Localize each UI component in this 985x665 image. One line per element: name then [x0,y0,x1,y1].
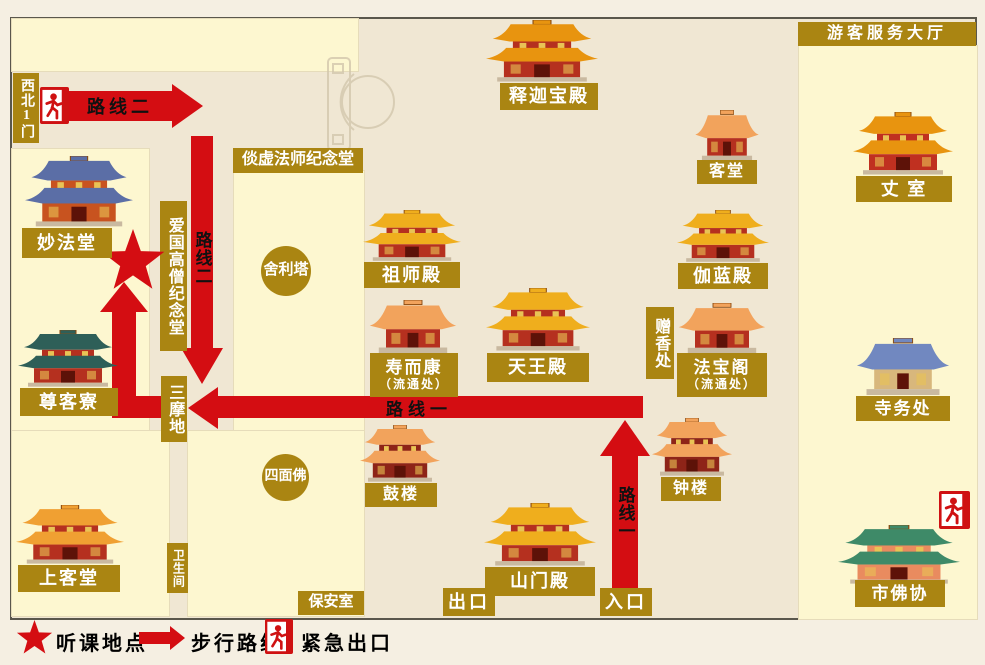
sarira-pagoda-label: 舍利塔 [261,246,311,296]
building-name: 妙法堂 [37,233,97,254]
emergency-exit-icon [265,619,293,654]
building-sublabel: （流通处） [379,378,449,392]
legend-emergency-exit: 紧急出口 [301,627,393,656]
building-name: 鼓楼 [383,486,419,504]
building-icon-tianwangdian [486,288,590,352]
building-label-zhonglou: 钟楼 [661,477,721,501]
building-name: 市佛协 [872,584,929,604]
building-icon-siwuchu [855,338,951,395]
building-name: 山门殿 [510,571,570,592]
building-label-fabaoge: 法宝阁（流通处） [677,353,767,397]
building-icon-zushidian [363,210,461,262]
building-icon-shouerkang [368,300,458,353]
building-name: 天王殿 [508,357,568,378]
building-icon-shangketang [16,505,124,565]
building-label-tianwangdian: 天王殿 [487,353,589,382]
building-name: 释迦宝殿 [509,86,589,107]
restroom-label: 卫生间 [167,543,188,593]
emergency-exit-icon [40,87,69,124]
building-name: 钟楼 [673,480,709,498]
route2-label-vertical: 路线二 [191,220,213,296]
building-label-shangketang: 上客堂 [18,565,120,592]
security-room-label: 保安室 [298,591,364,615]
building-label-zushidian: 祖师殿 [364,262,460,288]
building-name: 客堂 [709,163,745,181]
building-name: 上客堂 [39,568,99,589]
building-label-zhangshi: 丈 室 [856,176,952,202]
building-icon-shanmendian [484,503,596,567]
building-icon-zhonglou [652,418,732,477]
route1-label-horizontal: 路线一 [386,397,452,417]
pagoda-outline-ornament [306,56,402,152]
building-name: 寺务处 [875,399,932,419]
tanxu-memorial-label: 倓虚法师纪念堂 [233,148,363,173]
walk-arrow-icon [139,625,185,651]
building-name: 丈 室 [881,179,928,200]
building-icon-ketang [694,110,760,161]
building-label-shouerkang: 寿而康（流通处） [370,353,458,397]
building-label-shijiabaodian: 释迦宝殿 [500,83,598,110]
building-label-zunkeliao: 尊客寮 [20,388,118,416]
entrance-label: 入口 [600,588,652,616]
visitor-service-hall-banner: 游客服务大厅 [798,22,976,46]
building-icon-zhangshi [853,112,953,176]
building-label-siwuchu: 寺务处 [856,396,950,421]
four-faced-buddha-label: 四面佛 [262,454,309,501]
building-icon-gulou [360,425,440,483]
building-name: 寿而康 [386,358,443,378]
legend: 听课地点 步行路线 紧急出口 [0,616,985,665]
building-label-miaofatang: 妙法堂 [22,228,112,258]
building-name: 祖师殿 [382,265,442,286]
route2-label-horizontal: 路线二 [82,93,158,119]
building-icon-miaofatang [25,156,133,228]
building-icon-qielandian [677,210,769,263]
northwest-gate-label: 西北1门 [13,73,39,143]
building-icon-shifoxie [838,525,960,585]
building-label-ketang: 客堂 [697,160,757,184]
temple-guide-map: 路线二 路线二 路线一 路线一 游客服务大厅 西北1门 倓虚法师纪念堂 爱国高僧… [0,0,985,665]
route1-label-vertical: 路线一 [614,475,636,551]
building-label-shanmendian: 山门殿 [485,567,595,596]
building-icon-fabaoge [677,303,767,353]
incense-offering-label: 赠香处 [646,307,674,379]
emergency-exit-icon [939,491,970,529]
building-name: 法宝阁 [694,358,751,378]
star-icon [16,620,53,657]
samadhi-label: 三摩地 [161,376,187,442]
building-name: 伽蓝殿 [693,266,753,287]
building-sublabel: （流通处） [687,378,757,392]
building-icon-shijiabaodian [486,20,598,83]
building-label-shifoxie: 市佛协 [855,580,945,607]
building-icon-zunkeliao [18,330,118,388]
building-label-gulou: 鼓楼 [365,483,437,507]
building-name: 尊客寮 [39,392,99,413]
building-label-qielandian: 伽蓝殿 [678,263,768,289]
legend-lecture-spot: 听课地点 [56,627,148,656]
